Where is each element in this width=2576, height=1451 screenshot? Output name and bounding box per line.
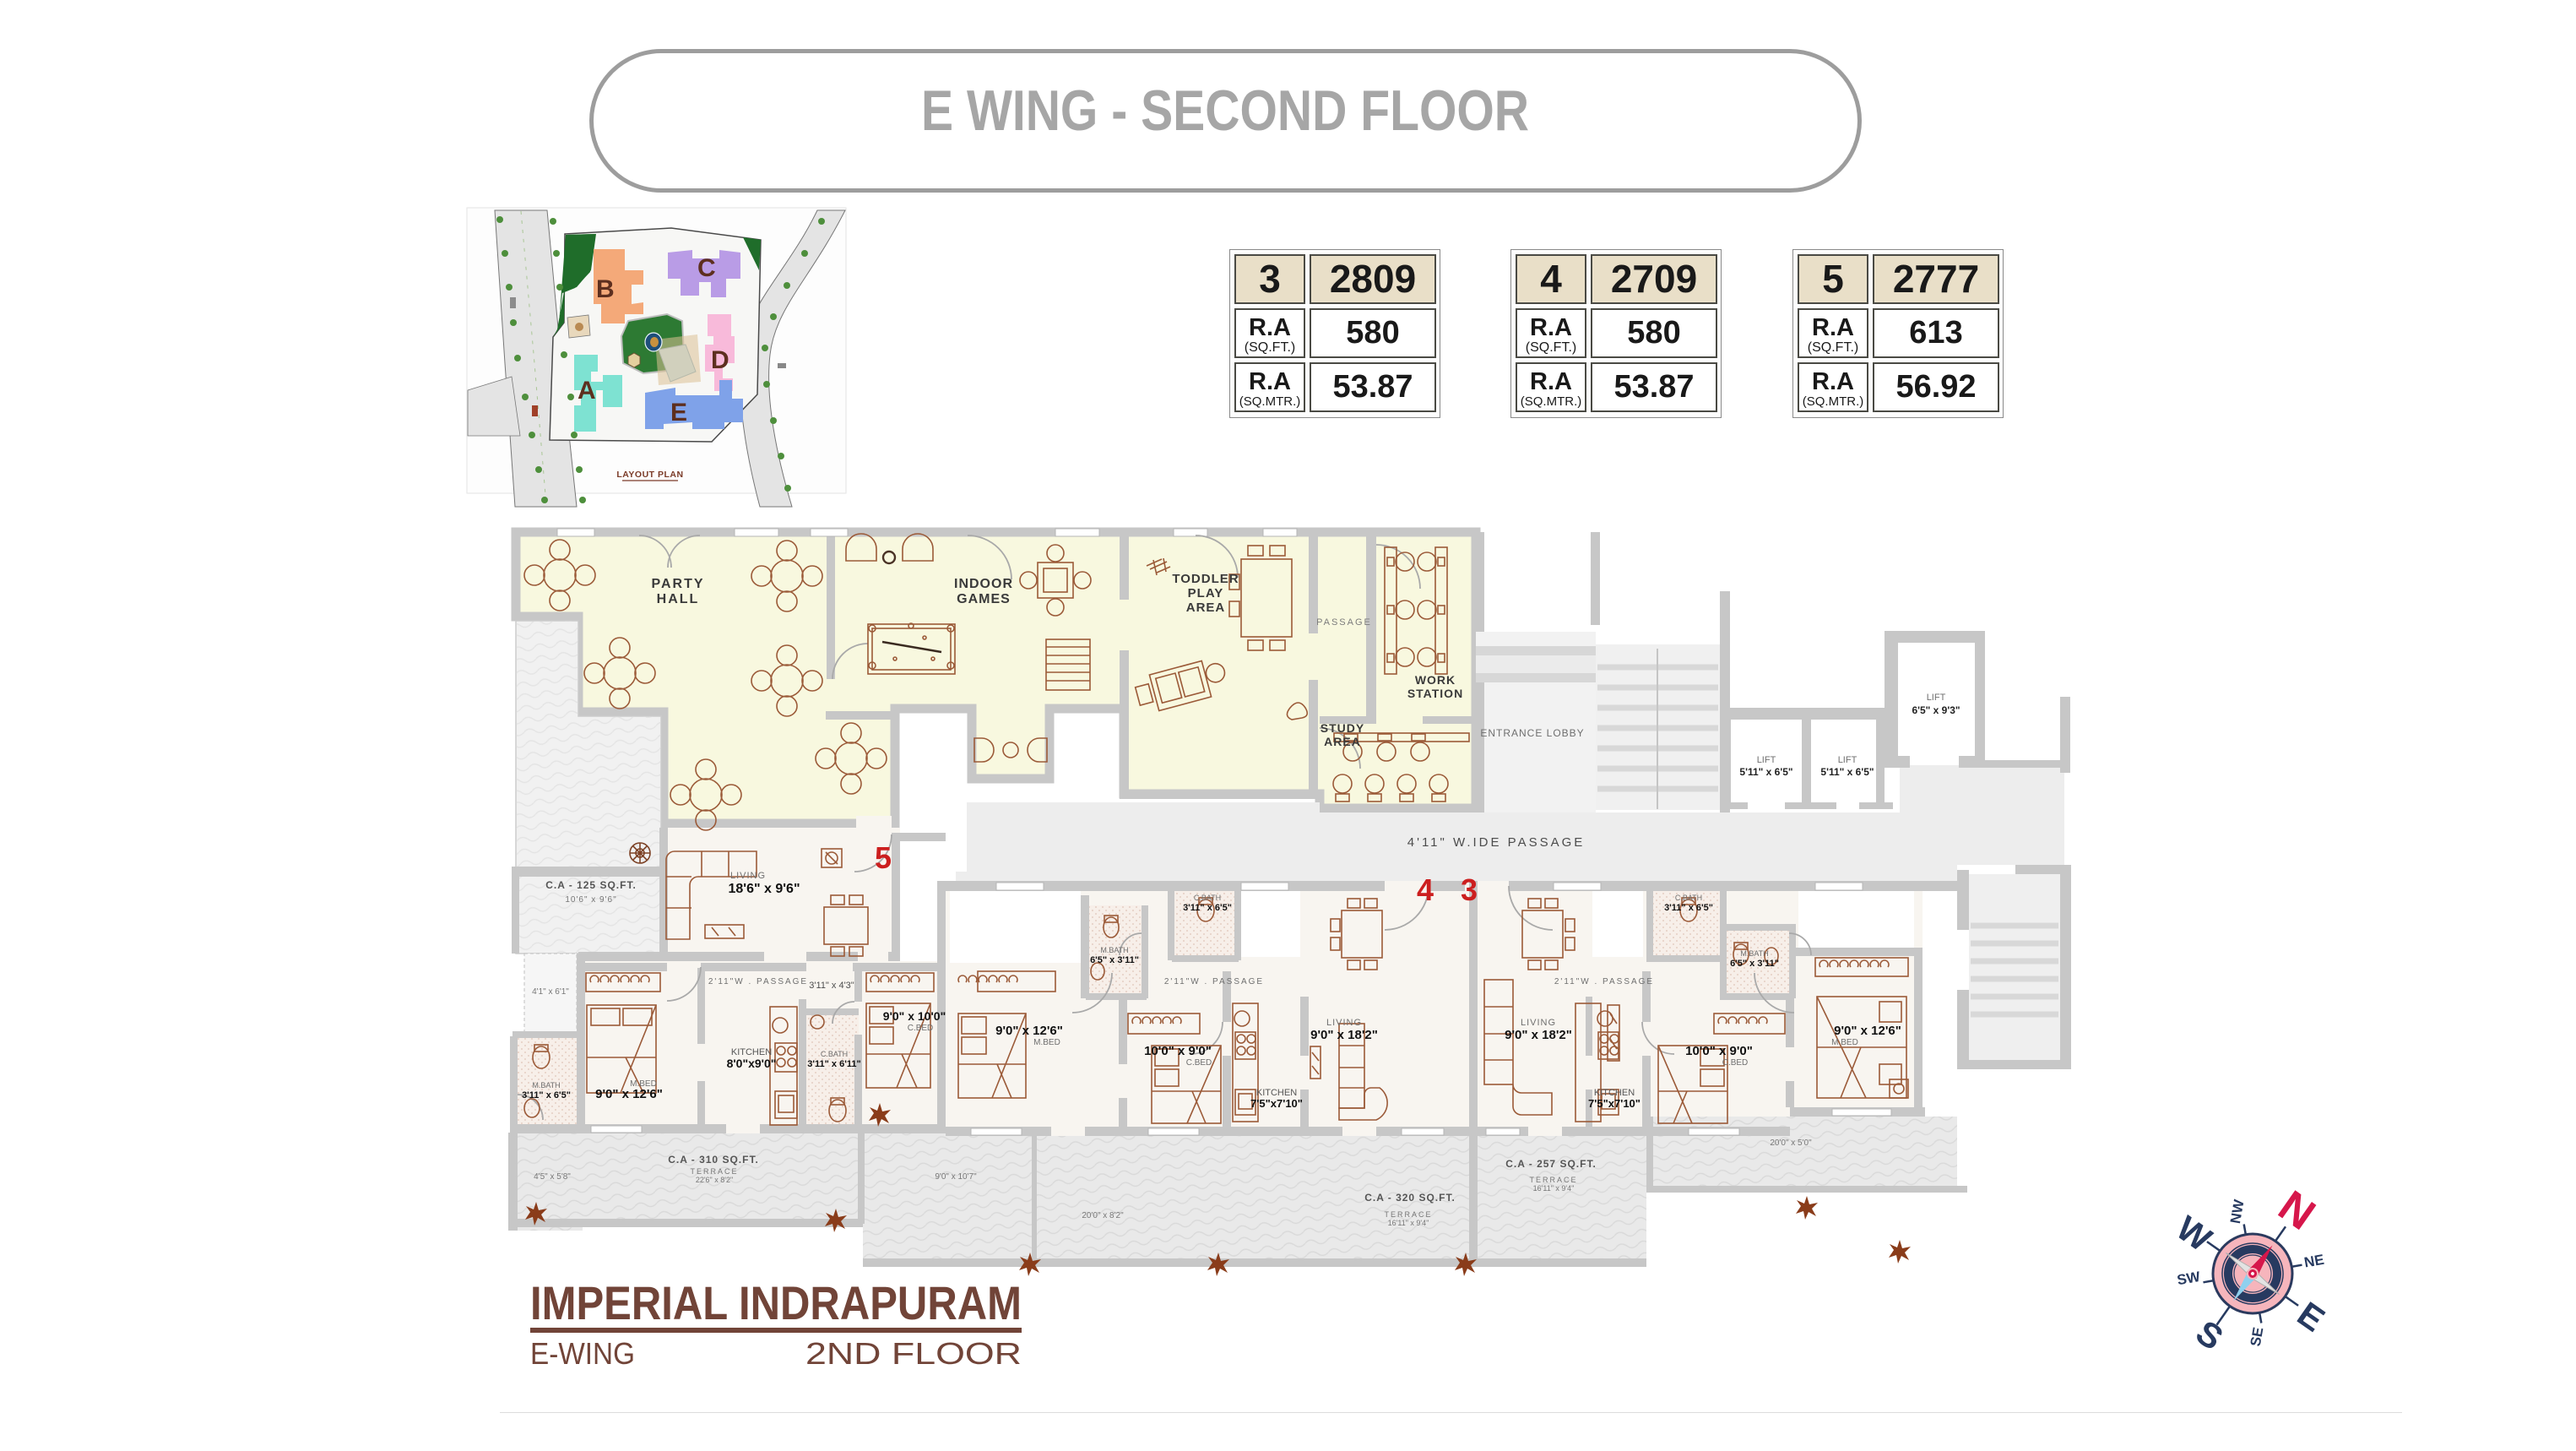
svg-text:M.BED: M.BED xyxy=(1831,1038,1858,1047)
svg-text:LIVING: LIVING xyxy=(1521,1018,1556,1028)
svg-text:D: D xyxy=(711,346,729,374)
svg-text:LIFT: LIFT xyxy=(1757,755,1776,765)
svg-text:2'11"W . PASSAGE: 2'11"W . PASSAGE xyxy=(708,977,808,986)
svg-text:E: E xyxy=(670,399,687,427)
svg-text:9'0" x 12'6": 9'0" x 12'6" xyxy=(995,1024,1063,1038)
svg-text:9'0" x 18'2": 9'0" x 18'2" xyxy=(1505,1028,1572,1042)
svg-text:PASSAGE: PASSAGE xyxy=(1316,617,1372,628)
svg-text:9'0" x 12'6": 9'0" x 12'6" xyxy=(595,1087,663,1101)
svg-text:A: A xyxy=(578,377,596,405)
svg-text:2'11"W . PASSAGE: 2'11"W . PASSAGE xyxy=(1164,977,1264,986)
svg-text:SW: SW xyxy=(2176,1269,2202,1289)
svg-text:8'0"x9'0": 8'0"x9'0" xyxy=(727,1057,777,1070)
svg-text:TERRACE: TERRACE xyxy=(1384,1210,1432,1219)
svg-text:2'11"W . PASSAGE: 2'11"W . PASSAGE xyxy=(1554,977,1654,986)
svg-text:10'6" x 9'6": 10'6" x 9'6" xyxy=(565,895,616,905)
svg-text:C: C xyxy=(697,254,716,282)
svg-text:20'0" x 8'2": 20'0" x 8'2" xyxy=(1082,1211,1124,1220)
svg-text:GAMES: GAMES xyxy=(957,592,1011,606)
svg-text:16'11" x 9'4": 16'11" x 9'4" xyxy=(1533,1184,1575,1193)
svg-text:3: 3 xyxy=(1461,872,1478,907)
svg-text:9'0" x 18'2": 9'0" x 18'2" xyxy=(1310,1028,1378,1042)
svg-text:4'5" x 5'8": 4'5" x 5'8" xyxy=(534,1172,571,1182)
svg-text:M.BED: M.BED xyxy=(1033,1038,1060,1047)
svg-text:C.BED: C.BED xyxy=(1722,1058,1749,1068)
svg-text:ENTRANCE LOBBY: ENTRANCE LOBBY xyxy=(1480,727,1584,739)
svg-text:9'0" x 10'0": 9'0" x 10'0" xyxy=(883,1009,946,1023)
svg-text:STUDY: STUDY xyxy=(1321,721,1364,735)
svg-text:INDOOR: INDOOR xyxy=(954,577,1013,591)
svg-text:C.BATH: C.BATH xyxy=(1194,894,1221,902)
svg-text:M.BATH: M.BATH xyxy=(1100,946,1128,954)
svg-text:10'0" x 9'0": 10'0" x 9'0" xyxy=(1685,1044,1753,1058)
svg-text:AREA: AREA xyxy=(1324,735,1361,748)
svg-text:LAYOUT PLAN: LAYOUT PLAN xyxy=(616,470,683,480)
svg-text:M.BATH: M.BATH xyxy=(1740,949,1768,958)
svg-text:E: E xyxy=(2291,1294,2332,1339)
svg-text:C.BATH: C.BATH xyxy=(821,1050,848,1058)
svg-text:C.A - 320 SQ.FT.: C.A - 320 SQ.FT. xyxy=(1364,1192,1456,1204)
svg-text:5: 5 xyxy=(875,840,892,875)
svg-text:5'11" x 6'5": 5'11" x 6'5" xyxy=(1820,766,1874,778)
svg-text:C.A - 125 SQ.FT.: C.A - 125 SQ.FT. xyxy=(545,879,637,891)
svg-text:TERRACE: TERRACE xyxy=(690,1167,738,1176)
svg-text:N: N xyxy=(2270,1182,2324,1240)
svg-text:M.BATH: M.BATH xyxy=(532,1081,560,1090)
svg-text:3'11" x 6'11": 3'11" x 6'11" xyxy=(807,1059,860,1069)
svg-text:9'0" x 10'7": 9'0" x 10'7" xyxy=(935,1172,977,1182)
svg-text:SE: SE xyxy=(2248,1326,2267,1348)
svg-text:C.A - 310 SQ.FT.: C.A - 310 SQ.FT. xyxy=(668,1154,759,1166)
svg-text:4'1" x 6'1": 4'1" x 6'1" xyxy=(532,987,569,997)
svg-text:3'11" x 4'3": 3'11" x 4'3" xyxy=(809,981,854,991)
svg-text:6'5" x 3'11": 6'5" x 3'11" xyxy=(1090,955,1139,965)
svg-text:3'11" x 6'5": 3'11" x 6'5" xyxy=(1183,903,1232,913)
svg-text:LIFT: LIFT xyxy=(1838,755,1857,765)
svg-text:4'11" W.IDE PASSAGE: 4'11" W.IDE PASSAGE xyxy=(1407,835,1586,850)
svg-text:C.BED: C.BED xyxy=(1186,1058,1212,1068)
svg-text:3'11" x 6'5": 3'11" x 6'5" xyxy=(1664,903,1713,913)
svg-text:HALL: HALL xyxy=(657,592,700,606)
svg-text:10'0" x 9'0": 10'0" x 9'0" xyxy=(1144,1044,1212,1058)
svg-text:20'0" x 5'0": 20'0" x 5'0" xyxy=(1770,1139,1812,1148)
svg-text:PARTY: PARTY xyxy=(651,577,704,591)
svg-text:C.BATH: C.BATH xyxy=(1675,894,1702,902)
svg-text:TODDLER: TODDLER xyxy=(1172,572,1239,586)
svg-text:WORK: WORK xyxy=(1415,673,1456,687)
svg-text:LIVING: LIVING xyxy=(730,871,766,881)
svg-text:3'11" x 6'5": 3'11" x 6'5" xyxy=(522,1090,571,1100)
svg-text:16'11" x 9'4": 16'11" x 9'4" xyxy=(1388,1219,1429,1227)
svg-text:B: B xyxy=(596,275,615,303)
svg-text:STATION: STATION xyxy=(1407,687,1463,700)
svg-text:C.A - 257 SQ.FT.: C.A - 257 SQ.FT. xyxy=(1505,1158,1597,1170)
svg-text:22'6" x 8'2": 22'6" x 8'2" xyxy=(696,1176,733,1184)
svg-text:6'5" x 9'3": 6'5" x 9'3" xyxy=(1912,704,1960,716)
svg-text:AREA: AREA xyxy=(1186,601,1226,615)
svg-text:7'5"x7'10": 7'5"x7'10" xyxy=(1588,1097,1641,1110)
svg-text:6'5" x 3'11": 6'5" x 3'11" xyxy=(1730,959,1779,969)
svg-text:9'0" x 12'6": 9'0" x 12'6" xyxy=(1834,1024,1901,1038)
svg-text:C.BED: C.BED xyxy=(908,1024,934,1033)
svg-text:PLAY: PLAY xyxy=(1188,586,1224,601)
svg-text:LIFT: LIFT xyxy=(1927,693,1946,703)
svg-text:LIVING: LIVING xyxy=(1326,1018,1362,1028)
svg-text:5'11" x 6'5": 5'11" x 6'5" xyxy=(1739,766,1792,778)
svg-text:4: 4 xyxy=(1417,872,1434,907)
svg-text:NW: NW xyxy=(2227,1198,2248,1225)
svg-text:W: W xyxy=(2170,1209,2219,1259)
svg-text:NE: NE xyxy=(2302,1252,2325,1271)
svg-text:18'6" x 9'6": 18'6" x 9'6" xyxy=(728,882,800,896)
svg-text:TERRACE: TERRACE xyxy=(1529,1176,1577,1184)
svg-text:7'5"x7'10": 7'5"x7'10" xyxy=(1250,1097,1303,1110)
svg-text:S: S xyxy=(2189,1312,2231,1357)
